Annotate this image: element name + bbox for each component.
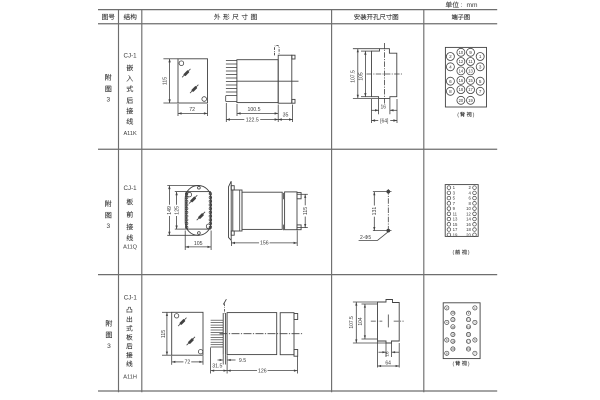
svg-text:3: 3 — [479, 64, 482, 69]
svg-text:10: 10 — [459, 50, 464, 55]
svg-text:156: 156 — [260, 241, 269, 247]
svg-text:12: 12 — [451, 318, 455, 322]
svg-text:15: 15 — [453, 222, 458, 227]
svg-text:104: 104 — [358, 317, 364, 326]
svg-text:18: 18 — [459, 87, 464, 92]
svg-text:14: 14 — [451, 325, 455, 329]
svg-text:100.5: 100.5 — [248, 107, 261, 113]
svg-text:5: 5 — [479, 79, 482, 84]
svg-text:72: 72 — [189, 107, 195, 113]
svg-text:CJ-1: CJ-1 — [124, 185, 138, 192]
svg-text:(: ( — [453, 361, 455, 367]
svg-text:105: 105 — [194, 241, 203, 247]
svg-text:20: 20 — [466, 232, 471, 237]
svg-text:20: 20 — [451, 347, 455, 351]
svg-text:17: 17 — [468, 87, 473, 92]
svg-text:17: 17 — [467, 339, 471, 343]
svg-text:8: 8 — [449, 89, 452, 94]
svg-text:9.5: 9.5 — [239, 358, 246, 364]
svg-text:11: 11 — [467, 318, 470, 322]
svg-text:4: 4 — [449, 64, 452, 69]
svg-text:16: 16 — [466, 222, 471, 227]
svg-text:19: 19 — [453, 232, 458, 237]
svg-text:10: 10 — [451, 311, 455, 315]
svg-text:126: 126 — [258, 368, 267, 374]
svg-text:(: ( — [457, 112, 459, 118]
svg-text:3: 3 — [107, 343, 111, 350]
svg-text:): ) — [468, 250, 470, 256]
svg-text:107.5: 107.5 — [351, 70, 357, 83]
svg-text:115: 115 — [303, 207, 309, 215]
svg-text:2-Φ5: 2-Φ5 — [360, 235, 371, 241]
svg-text:19: 19 — [468, 98, 473, 103]
svg-text:14: 14 — [459, 68, 464, 73]
svg-text:12: 12 — [459, 59, 464, 64]
svg-text:13: 13 — [468, 68, 473, 73]
svg-text:10: 10 — [466, 206, 471, 211]
svg-text:6: 6 — [449, 79, 452, 84]
svg-text:2: 2 — [449, 54, 452, 59]
svg-text:149: 149 — [167, 206, 173, 215]
svg-text:105: 105 — [358, 72, 364, 81]
svg-text:16: 16 — [459, 78, 464, 83]
svg-text:mm: mm — [467, 2, 478, 9]
svg-text:72: 72 — [184, 360, 190, 366]
svg-text:(: ( — [453, 250, 455, 256]
svg-text:20: 20 — [459, 98, 464, 103]
svg-text:CJ-1: CJ-1 — [124, 53, 138, 60]
svg-text:9: 9 — [469, 50, 472, 55]
svg-text:31.5: 31.5 — [212, 364, 222, 370]
svg-text:19: 19 — [467, 347, 471, 351]
svg-text:16: 16 — [451, 333, 455, 337]
svg-text:A11Q: A11Q — [123, 244, 138, 250]
svg-text:11: 11 — [468, 59, 473, 64]
svg-text:3: 3 — [106, 97, 110, 104]
svg-text:18: 18 — [451, 339, 455, 343]
svg-text:[64]: [64] — [380, 118, 389, 124]
svg-text:3: 3 — [106, 223, 110, 230]
svg-text:115: 115 — [161, 330, 167, 338]
svg-text:1: 1 — [479, 54, 482, 59]
svg-text:13: 13 — [467, 325, 471, 329]
svg-text:15: 15 — [467, 333, 471, 337]
svg-text::: : — [461, 2, 463, 9]
svg-text:122.5: 122.5 — [246, 117, 259, 123]
svg-text:125: 125 — [174, 206, 180, 215]
svg-text:7: 7 — [479, 89, 482, 94]
svg-text:A11H: A11H — [123, 374, 137, 380]
svg-text:): ) — [473, 112, 475, 118]
svg-text:): ) — [468, 361, 470, 367]
svg-text:35: 35 — [283, 113, 289, 119]
svg-text:A11K: A11K — [123, 131, 137, 137]
svg-text:CJ-1: CJ-1 — [124, 294, 138, 301]
svg-text:16: 16 — [381, 104, 387, 110]
svg-text:64: 64 — [385, 360, 391, 366]
svg-text:15: 15 — [468, 78, 473, 83]
svg-text:131: 131 — [372, 207, 378, 216]
svg-text:107.5: 107.5 — [349, 316, 355, 329]
svg-text:16: 16 — [385, 351, 390, 357]
svg-text:115: 115 — [163, 77, 169, 85]
